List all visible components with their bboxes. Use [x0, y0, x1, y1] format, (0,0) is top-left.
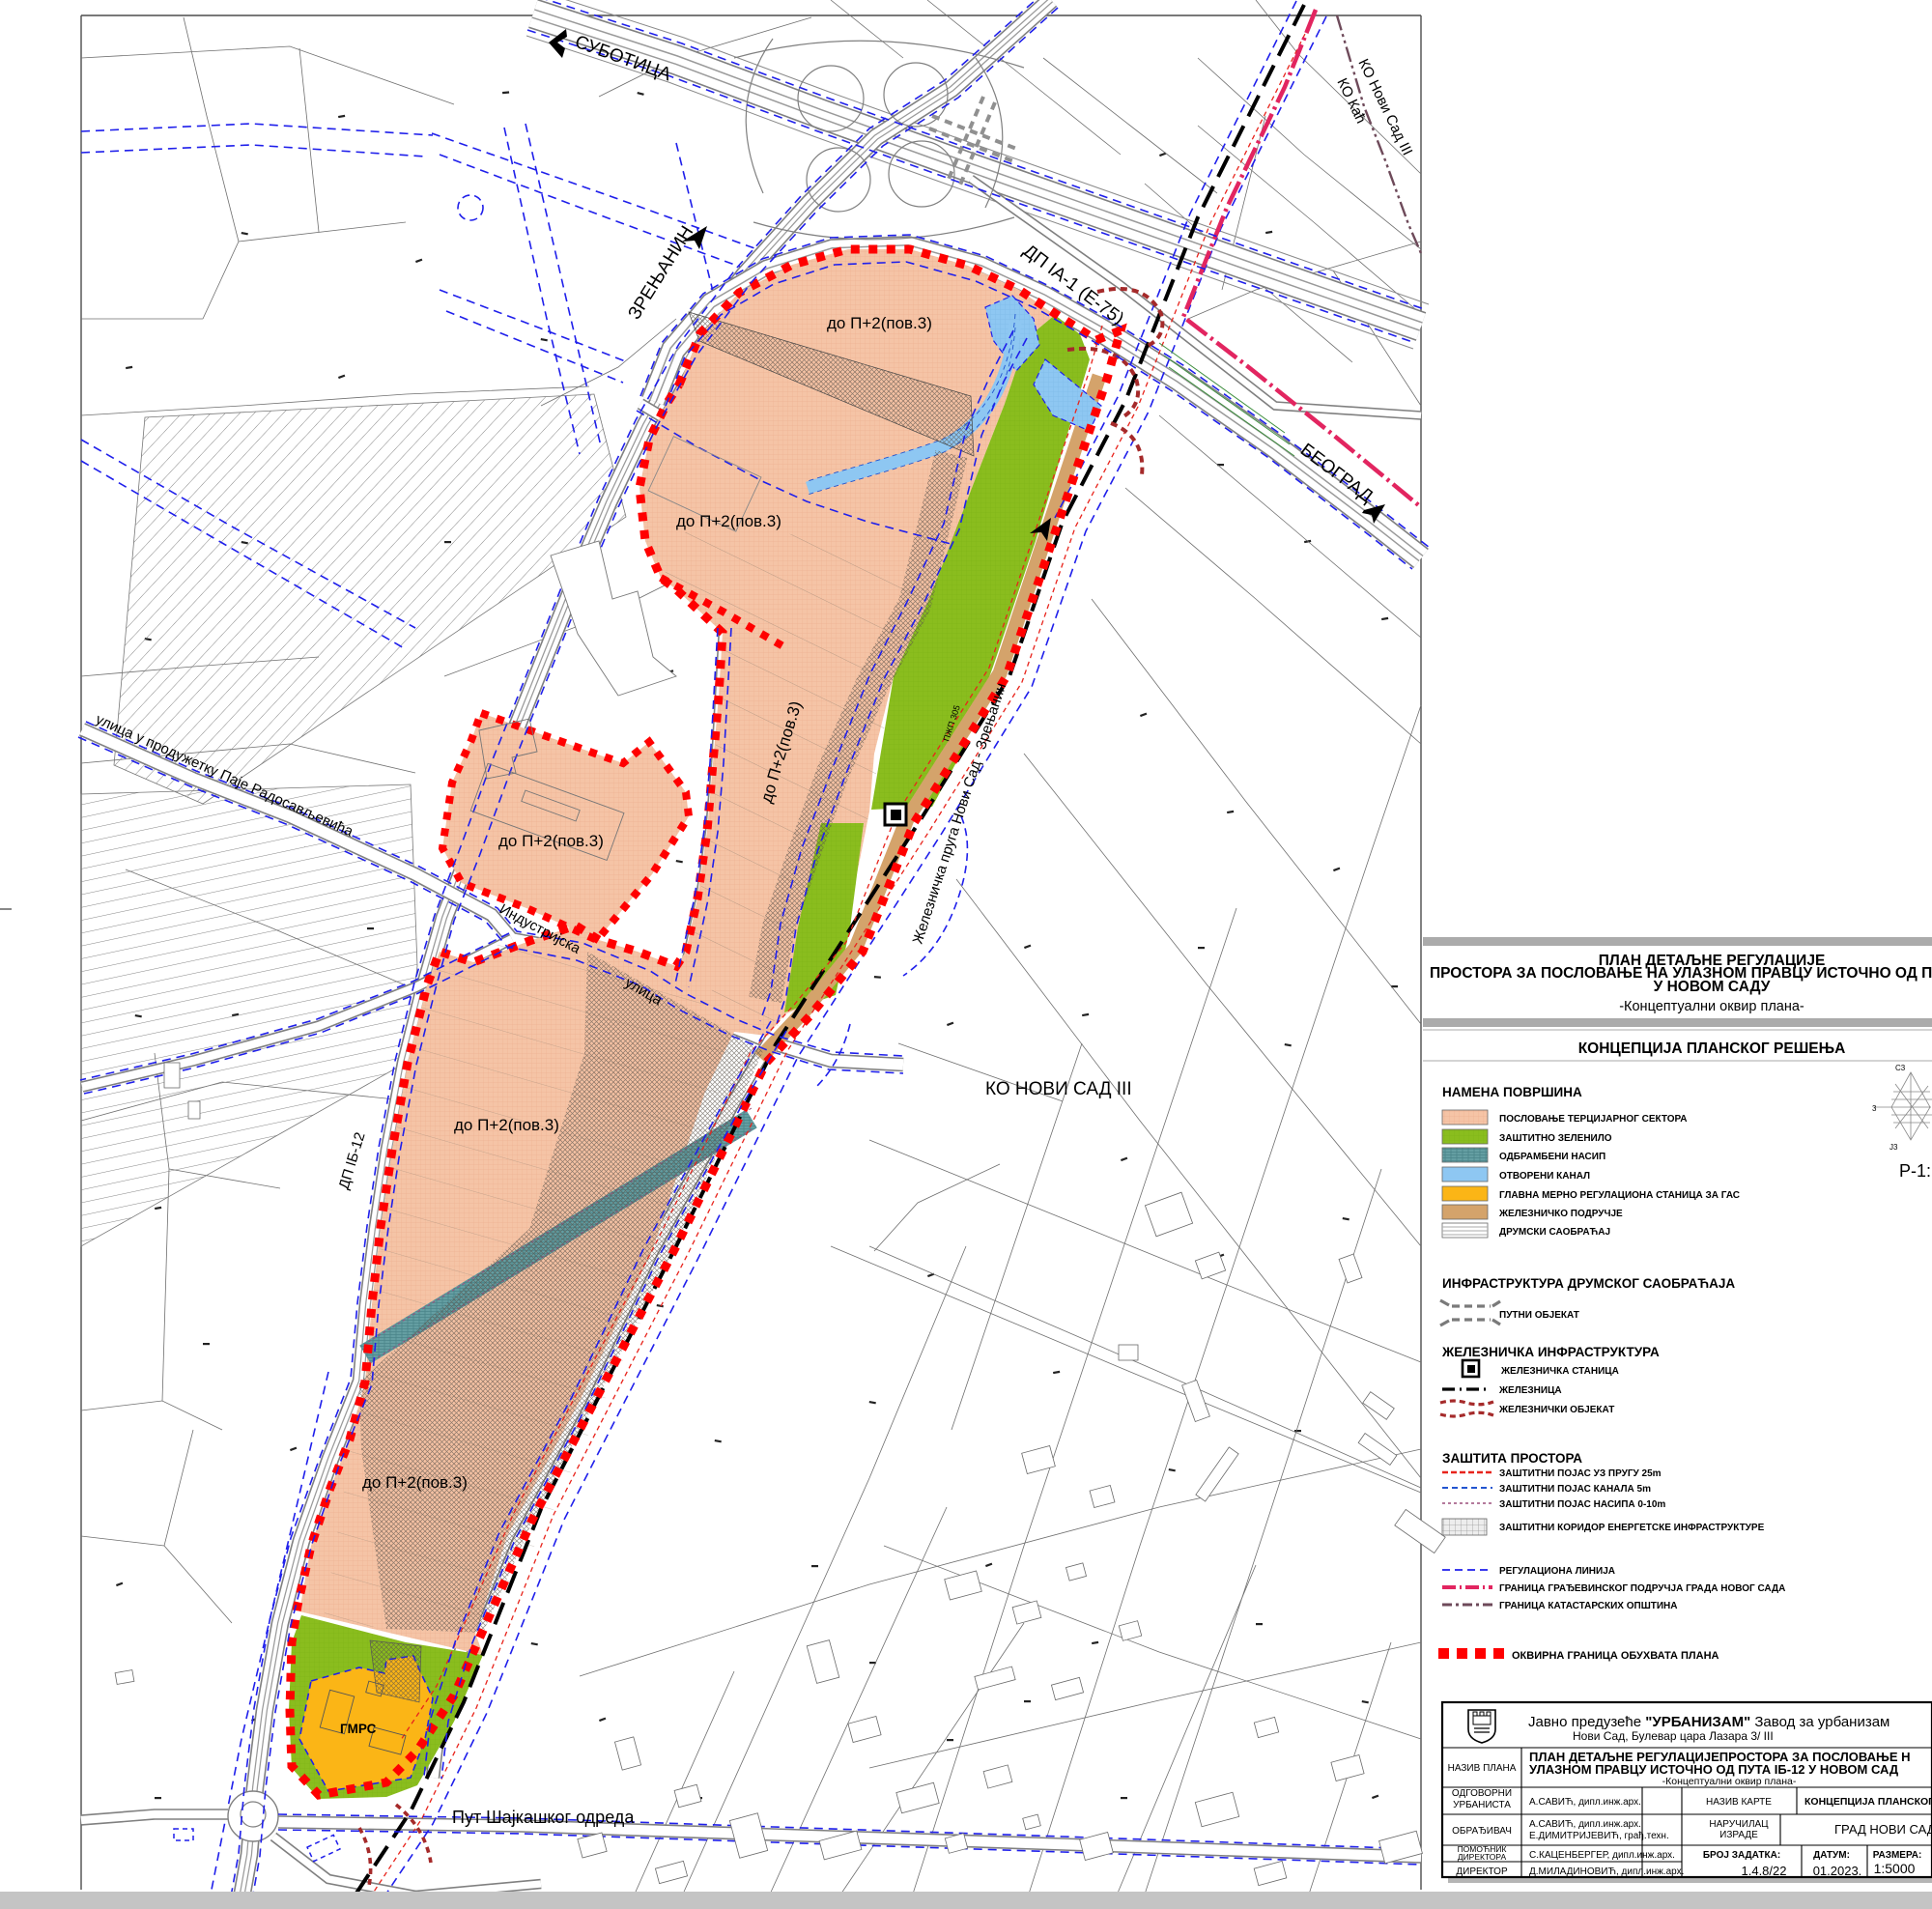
- svg-text:до П+2(пов.3): до П+2(пов.3): [362, 1473, 468, 1492]
- svg-text:ОДБРАМБЕНИ НАСИП: ОДБРАМБЕНИ НАСИП: [1499, 1152, 1605, 1162]
- svg-text:ГЛАВНА МЕРНО РЕГУЛАЦИОНА СТАНИ: ГЛАВНА МЕРНО РЕГУЛАЦИОНА СТАНИЦА ЗА ГАС: [1499, 1190, 1740, 1201]
- svg-text:ЗАШТИТНО ЗЕЛЕНИЛО: ЗАШТИТНО ЗЕЛЕНИЛО: [1499, 1133, 1612, 1144]
- svg-text:ЗАШТИТНИ ПОЈАС НАСИПА 0-10m: ЗАШТИТНИ ПОЈАС НАСИПА 0-10m: [1499, 1499, 1665, 1510]
- svg-text:РЕГУЛАЦИОНА ЛИНИЈА: РЕГУЛАЦИОНА ЛИНИЈА: [1499, 1566, 1615, 1577]
- svg-text:ГРАНИЦА ГРАЂЕВИНСКОГ ПОДРУЧЈА: ГРАНИЦА ГРАЂЕВИНСКОГ ПОДРУЧЈА ГРАДА НОВО…: [1499, 1583, 1785, 1594]
- svg-text:ЖЕЛЕЗНИЧКО ПОДРУЧЈЕ: ЖЕЛЕЗНИЧКО ПОДРУЧЈЕ: [1498, 1209, 1623, 1219]
- svg-text:УРБАНИСТА: УРБАНИСТА: [1453, 1800, 1511, 1810]
- svg-text:У НОВОМ САДУ: У НОВОМ САДУ: [1654, 979, 1771, 995]
- svg-text:ЖЕЛЕЗНИЧКИ ОБЈЕКАТ: ЖЕЛЕЗНИЧКИ ОБЈЕКАТ: [1498, 1405, 1614, 1415]
- svg-text:НАЗИВ КАРТЕ: НАЗИВ КАРТЕ: [1706, 1797, 1772, 1808]
- svg-text:ЗАШТИТНИ КОРИДОР ЕНЕРГЕТСКЕ ИН: ЗАШТИТНИ КОРИДОР ЕНЕРГЕТСКЕ ИНФРАСТРУКТУ…: [1499, 1523, 1765, 1533]
- svg-text:ОДГОВОРНИ: ОДГОВОРНИ: [1452, 1788, 1512, 1799]
- svg-text:РАЗМЕРА:: РАЗМЕРА:: [1873, 1850, 1922, 1861]
- svg-text:А.САВИЋ, дипл.инж.арх.: А.САВИЋ, дипл.инж.арх.: [1529, 1819, 1641, 1830]
- svg-text:ДИРЕКТОРА: ДИРЕКТОРА: [1458, 1852, 1507, 1862]
- svg-text:до П+2(пов.3): до П+2(пов.3): [454, 1116, 559, 1134]
- svg-text:КОНЦЕПЦИЈА ПЛАНСКОГ РЕШЕЊА: КОНЦЕПЦИЈА ПЛАНСКОГ РЕШЕЊА: [1578, 1040, 1846, 1057]
- svg-text:ИНФРАСТРУКТУРА ДРУМСКОГ САОБРА: ИНФРАСТРУКТУРА ДРУМСКОГ САОБРАЋАЈА: [1442, 1276, 1735, 1291]
- svg-text:КОНЦЕПЦИЈА ПЛАНСКОГ: КОНЦЕПЦИЈА ПЛАНСКОГ: [1804, 1796, 1932, 1808]
- svg-text:КО НОВИ САД ІІІ: КО НОВИ САД ІІІ: [985, 1079, 1132, 1099]
- svg-text:ГМРС: ГМРС: [340, 1722, 377, 1736]
- svg-text:С3: С3: [1895, 1064, 1906, 1072]
- svg-text:НАЗИВ ПЛАНА: НАЗИВ ПЛАНА: [1448, 1763, 1517, 1774]
- svg-text:ЗАШТИТНИ ПОЈАС КАНАЛА 5m: ЗАШТИТНИ ПОЈАС КАНАЛА 5m: [1499, 1484, 1651, 1495]
- svg-text:ГРАД НОВИ САД: ГРАД НОВИ САД: [1834, 1822, 1932, 1837]
- svg-text:-Концептуални оквир плана-: -Концептуални оквир плана-: [1619, 999, 1804, 1014]
- svg-text:ЗАШТИТА ПРОСТОРА: ЗАШТИТА ПРОСТОРА: [1442, 1451, 1582, 1466]
- svg-text:НАРУЧИЛАЦ: НАРУЧИЛАЦ: [1709, 1819, 1769, 1830]
- svg-text:ЖЕЛЕЗНИЦА: ЖЕЛЕЗНИЦА: [1498, 1385, 1562, 1396]
- svg-text:ПУТНИ ОБЈЕКАТ: ПУТНИ ОБЈЕКАТ: [1499, 1310, 1579, 1321]
- svg-text:БРОЈ ЗАДАТКА:: БРОЈ ЗАДАТКА:: [1703, 1850, 1780, 1861]
- svg-text:3: 3: [1872, 1104, 1877, 1113]
- svg-text:до П+2(пов.3): до П+2(пов.3): [498, 832, 604, 850]
- svg-text:Е.ДИМИТРИЈЕВИЋ, грађ.техн.: Е.ДИМИТРИЈЕВИЋ, грађ.техн.: [1529, 1830, 1669, 1841]
- svg-text:Ј3: Ј3: [1889, 1143, 1898, 1152]
- svg-text:ОКВИРНА ГРАНИЦА ОБУХВАТА ПЛАНА: ОКВИРНА ГРАНИЦА ОБУХВАТА ПЛАНА: [1512, 1650, 1719, 1662]
- svg-text:ЖЕЛЕЗНИЧКА ИНФРАСТРУКТУРА: ЖЕЛЕЗНИЧКА ИНФРАСТРУКТУРА: [1441, 1345, 1660, 1359]
- svg-text:УЛАЗНОМ ПРАВЦУ ИСТОЧНО ОД ПУТА: УЛАЗНОМ ПРАВЦУ ИСТОЧНО ОД ПУТА ІБ-12 У Н…: [1529, 1762, 1899, 1777]
- svg-text:до П+2(пов.3): до П+2(пов.3): [827, 314, 932, 332]
- svg-text:Р-1:: Р-1:: [1899, 1161, 1931, 1181]
- svg-text:ЗАШТИТНИ ПОЈАС УЗ ПРУГУ 25m: ЗАШТИТНИ ПОЈАС УЗ ПРУГУ 25m: [1499, 1468, 1662, 1479]
- svg-text:1:5000: 1:5000: [1874, 1861, 1916, 1876]
- svg-text:ПОСЛОВАЊЕ ТЕРЦИЈАРНОГ СЕКТОРА: ПОСЛОВАЊЕ ТЕРЦИЈАРНОГ СЕКТОРА: [1499, 1114, 1688, 1125]
- svg-text:1.4.8/22: 1.4.8/22: [1742, 1864, 1787, 1878]
- svg-text:ОБРАЂИВАЧ: ОБРАЂИВАЧ: [1452, 1826, 1512, 1837]
- svg-text:Д.МИЛАДИНОВИЋ, дипл.инж.арх.: Д.МИЛАДИНОВИЋ, дипл.инж.арх.: [1529, 1866, 1684, 1877]
- svg-text:-Концептуални оквир плана-: -Концептуални оквир плана-: [1662, 1776, 1797, 1787]
- svg-text:ОТВОРЕНИ КАНАЛ: ОТВОРЕНИ КАНАЛ: [1499, 1171, 1590, 1182]
- svg-text:Јавно предузеће "УРБАНИЗАМ" За: Јавно предузеће "УРБАНИЗАМ" Завод за урб…: [1528, 1714, 1889, 1730]
- svg-text:Нови Сад, Булевар цара Лазара: Нови Сад, Булевар цара Лазара 3/ ІІІ: [1573, 1729, 1774, 1743]
- svg-text:С.КАЦЕНБЕРГЕР, дипл.инж.арх.: С.КАЦЕНБЕРГЕР, дипл.инж.арх.: [1529, 1850, 1675, 1861]
- svg-text:НАМЕНА ПОВРШИНА: НАМЕНА ПОВРШИНА: [1442, 1085, 1582, 1099]
- svg-text:А.САВИЋ, дипл.инж.арх.: А.САВИЋ, дипл.инж.арх.: [1529, 1797, 1641, 1808]
- svg-text:до П+2(пов.3): до П+2(пов.3): [676, 512, 781, 530]
- svg-text:01.2023.: 01.2023.: [1813, 1864, 1862, 1878]
- svg-text:ДРУМСКИ САОБРАЋАЈ: ДРУМСКИ САОБРАЋАЈ: [1499, 1227, 1610, 1238]
- svg-text:ГРАНИЦА КАТАСТАРСКИХ ОПШТИНА: ГРАНИЦА КАТАСТАРСКИХ ОПШТИНА: [1499, 1601, 1677, 1611]
- svg-text:ИЗРАДЕ: ИЗРАДЕ: [1719, 1830, 1758, 1840]
- svg-text:ЖЕЛЕЗНИЧКА СТАНИЦА: ЖЕЛЕЗНИЧКА СТАНИЦА: [1500, 1366, 1619, 1377]
- svg-text:Пут Шајкашког одреда: Пут Шајкашког одреда: [452, 1808, 635, 1827]
- svg-text:ДИРЕКТОР: ДИРЕКТОР: [1456, 1866, 1508, 1877]
- svg-text:ДАТУМ:: ДАТУМ:: [1813, 1850, 1850, 1861]
